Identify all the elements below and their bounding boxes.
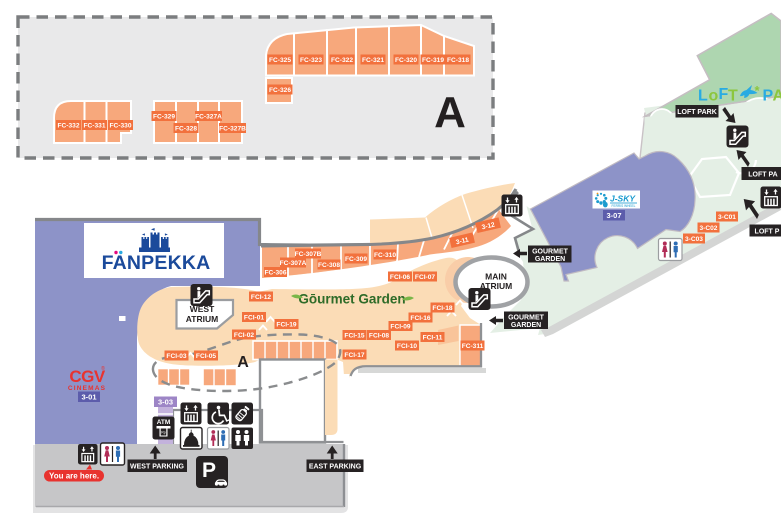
svg-text:3-07: 3-07 — [606, 211, 621, 220]
svg-text:ATRIUM: ATRIUM — [186, 314, 218, 324]
svg-text:3-C02: 3-C02 — [700, 225, 718, 232]
svg-text:FC-319: FC-319 — [422, 57, 444, 64]
svg-text:MAIN: MAIN — [485, 272, 507, 282]
svg-text:FC-311: FC-311 — [462, 343, 484, 350]
svg-text:ATM: ATM — [157, 419, 171, 426]
svg-text:FC-332: FC-332 — [58, 123, 80, 130]
svg-text:FCI-02: FCI-02 — [234, 332, 254, 339]
svg-text:FCI-03: FCI-03 — [166, 353, 186, 360]
svg-text:FC-327A: FC-327A — [195, 114, 222, 121]
svg-text:CINEMAS: CINEMAS — [68, 385, 106, 392]
svg-text:FC-320: FC-320 — [395, 57, 417, 64]
svg-text:F: F — [719, 86, 729, 103]
svg-text:FERRIS WHEEL: FERRIS WHEEL — [612, 204, 636, 208]
svg-text:FC-328: FC-328 — [175, 126, 197, 133]
svg-text:FC-323: FC-323 — [300, 57, 322, 64]
svg-text:FC-306: FC-306 — [265, 270, 287, 277]
svg-text:L: L — [698, 88, 708, 105]
svg-text:A: A — [434, 88, 466, 137]
svg-text:3-C03: 3-C03 — [685, 236, 703, 243]
svg-text:Rp: Rp — [161, 431, 166, 435]
svg-text:FC-322: FC-322 — [331, 57, 353, 64]
svg-text:FC-307B: FC-307B — [295, 251, 322, 258]
svg-text:GOURMET: GOURMET — [532, 249, 569, 256]
svg-text:FC-331: FC-331 — [84, 123, 106, 130]
svg-text:FCI-17: FCI-17 — [344, 352, 364, 359]
svg-text:FCI-11: FCI-11 — [423, 335, 443, 342]
svg-text:WEST PARKING: WEST PARKING — [130, 464, 184, 471]
svg-text:FCI-19: FCI-19 — [276, 322, 296, 329]
svg-text:FC-307A: FC-307A — [280, 260, 307, 267]
svg-text:FCI-10: FCI-10 — [397, 343, 417, 350]
svg-text:GOURMET: GOURMET — [508, 315, 545, 322]
svg-text:FCI-07: FCI-07 — [415, 274, 435, 281]
svg-text:FCI-06: FCI-06 — [390, 274, 410, 281]
svg-text:FC-310: FC-310 — [374, 252, 396, 259]
svg-text:FC-327B: FC-327B — [219, 126, 246, 133]
svg-text:You are here.: You are here. — [49, 472, 99, 481]
svg-text:FC-318: FC-318 — [447, 57, 469, 64]
svg-text:GARDEN: GARDEN — [535, 256, 565, 263]
svg-text:T: T — [728, 88, 738, 105]
svg-text:o: o — [709, 88, 719, 105]
svg-text:FCI-08: FCI-08 — [369, 333, 389, 340]
svg-text:LOFT P: LOFT P — [755, 229, 780, 236]
svg-text:EAST PARKING: EAST PARKING — [309, 464, 362, 471]
svg-text:FC-325: FC-325 — [269, 57, 291, 64]
svg-text:A: A — [773, 88, 781, 105]
svg-text:FC-329: FC-329 — [153, 114, 175, 121]
svg-text:FC-321: FC-321 — [362, 57, 384, 64]
svg-text:FCI-09: FCI-09 — [390, 324, 410, 331]
svg-text:FC-330: FC-330 — [110, 123, 132, 130]
svg-text:FC-308: FC-308 — [318, 262, 340, 269]
svg-text:FC-309: FC-309 — [345, 256, 367, 263]
svg-text:FCI-01: FCI-01 — [244, 315, 264, 322]
svg-text:FANPEKKA: FANPEKKA — [102, 252, 211, 274]
svg-text:J-SKY: J-SKY — [610, 194, 636, 204]
svg-text:GARDEN: GARDEN — [511, 322, 541, 329]
svg-text:3-03: 3-03 — [158, 398, 173, 407]
svg-text:FCI-12: FCI-12 — [251, 294, 271, 301]
svg-text:FC-326: FC-326 — [269, 87, 291, 94]
svg-text:LOFT PA: LOFT PA — [748, 172, 777, 179]
svg-text:3-C01: 3-C01 — [718, 214, 736, 221]
svg-text:FCI-05: FCI-05 — [196, 353, 216, 360]
svg-text:FCI-18: FCI-18 — [432, 305, 452, 312]
svg-text:Gōurmet Garden: Gōurmet Garden — [298, 292, 405, 307]
svg-text:A: A — [237, 354, 249, 371]
svg-text:P: P — [202, 459, 216, 482]
svg-text:FCI-16: FCI-16 — [410, 315, 430, 322]
svg-text:LOFT PARK: LOFT PARK — [677, 109, 717, 116]
svg-text:®: ® — [101, 365, 105, 372]
svg-text:FCI-15: FCI-15 — [344, 333, 364, 340]
svg-text:3-01: 3-01 — [81, 393, 96, 402]
